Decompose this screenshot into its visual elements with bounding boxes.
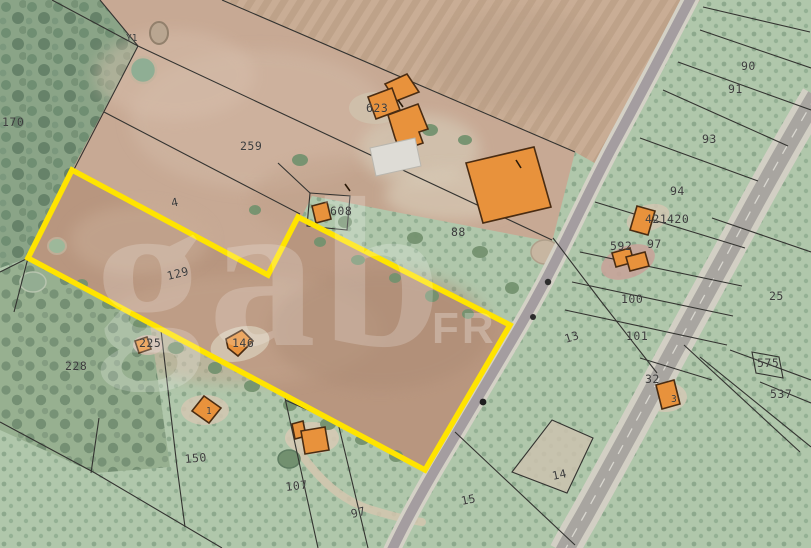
parcel-label-90[interactable]: 90 [741,59,756,73]
parcel-label-421[interactable]: 421 [645,212,667,226]
parcel-label-100[interactable]: 100 [621,292,643,306]
parcel-label-93[interactable]: 93 [702,132,717,146]
parcel-label-107[interactable]: 107 [285,477,309,494]
parcel-label-225[interactable]: 225 [139,336,161,350]
watermark-text-secondary: FR [432,304,497,353]
watermark: gab FR [95,153,497,392]
parcel-label-228[interactable]: 228 [65,359,87,373]
watermark-text-primary: gab [95,153,448,392]
building [301,427,329,454]
map-canvas[interactable]: gab FR Y1 170 259 4 623 608 88 129 90 91… [0,0,811,548]
vehicle-dot [545,279,551,285]
parcel-label-623[interactable]: 623 [366,101,388,115]
parcel-label-32[interactable]: 32 [645,372,660,386]
parcel-label-91[interactable]: 91 [728,82,743,96]
parcel-label-259[interactable]: 259 [240,139,262,153]
parcel-label-101[interactable]: 101 [626,329,648,343]
cadastral-map-view[interactable]: gab FR Y1 170 259 4 623 608 88 129 90 91… [0,0,811,548]
field-shade [430,10,610,110]
parcel-label-592[interactable]: 592 [610,239,632,253]
vehicle-dot [530,314,536,320]
parcel-label-94[interactable]: 94 [670,184,685,198]
pond [130,57,156,83]
parcel-label-97-right[interactable]: 97 [647,237,662,251]
building-mark-3: 3 [671,394,677,405]
pond [150,22,168,44]
pond [48,238,66,254]
parcel-label-88[interactable]: 88 [451,225,466,239]
field-highlight [95,30,255,120]
parcel-label-575[interactable]: 575 [757,356,779,370]
parcel-label-420[interactable]: 420 [667,212,689,226]
parcel-label-150[interactable]: 150 [184,450,207,466]
parcel-label-y1[interactable]: Y1 [126,33,138,44]
parcel-label-170[interactable]: 170 [2,115,24,129]
parcel-label-608[interactable]: 608 [330,204,352,218]
parcel-label-537[interactable]: 537 [770,387,792,401]
building-mark-1: 1 [206,406,212,417]
parcel-label-146[interactable]: 146 [232,336,254,350]
vehicle-dot [480,399,487,406]
parcel-label-25[interactable]: 25 [769,289,784,303]
